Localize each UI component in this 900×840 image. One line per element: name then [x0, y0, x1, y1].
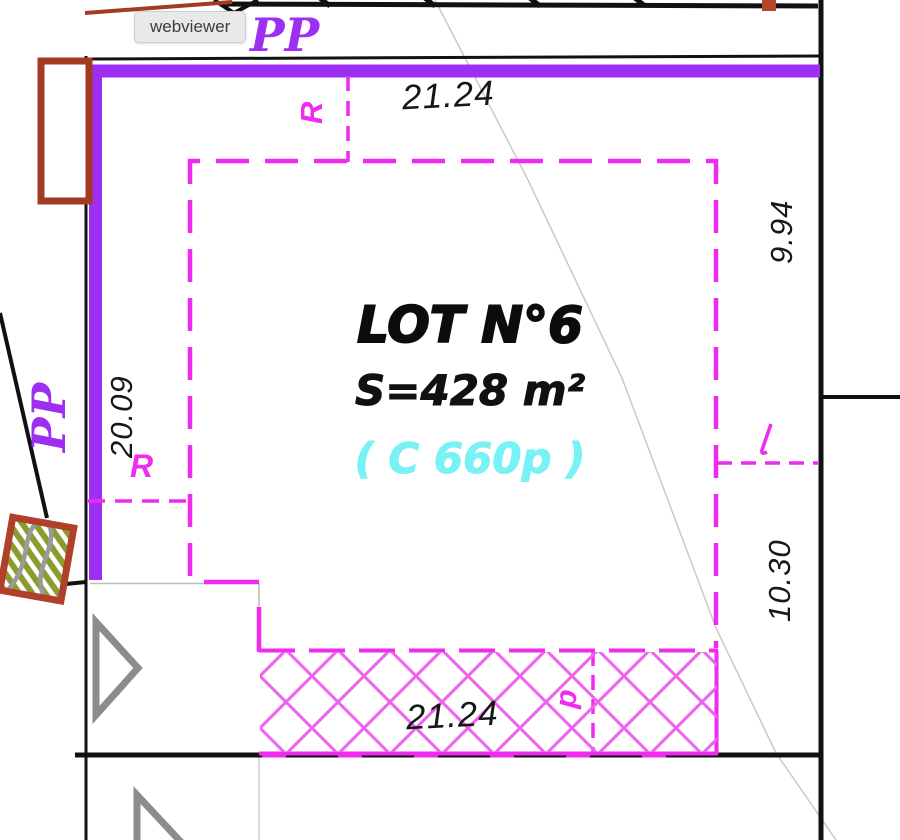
lot-boundary-step: [204, 582, 259, 652]
lot-title: LOT N°6: [340, 300, 600, 350]
pp-label-top: PP: [250, 12, 319, 58]
red-structure-outline: [41, 61, 89, 201]
d-marker: d: [553, 689, 584, 710]
lot-capacity: ( C 660p ): [325, 438, 615, 480]
red-post-marker: [762, 0, 776, 11]
tree-symbol: [0, 517, 74, 601]
dimension-top: 21.24: [401, 76, 495, 116]
r-marker-top: R: [296, 102, 327, 124]
slope-arrow-1: [96, 622, 138, 715]
slope-arrow-2: [137, 795, 180, 840]
dimension-left: 20.09: [106, 375, 137, 458]
r-marker-left: R: [130, 450, 153, 482]
webviewer-tooltip: webviewer: [134, 11, 246, 43]
pp-label-left: PP: [26, 383, 72, 452]
plan-canvas[interactable]: PP PP 21.24 9.94 20.09 10.30 21.24 R R d…: [0, 0, 900, 840]
tick-mark-right: [762, 424, 771, 453]
lot-area: S=428 m²: [330, 370, 610, 412]
dimension-right-upper: 9.94: [766, 200, 797, 264]
dimension-bottom: 21.24: [405, 696, 499, 736]
dimension-right-lower: 10.30: [764, 539, 795, 622]
